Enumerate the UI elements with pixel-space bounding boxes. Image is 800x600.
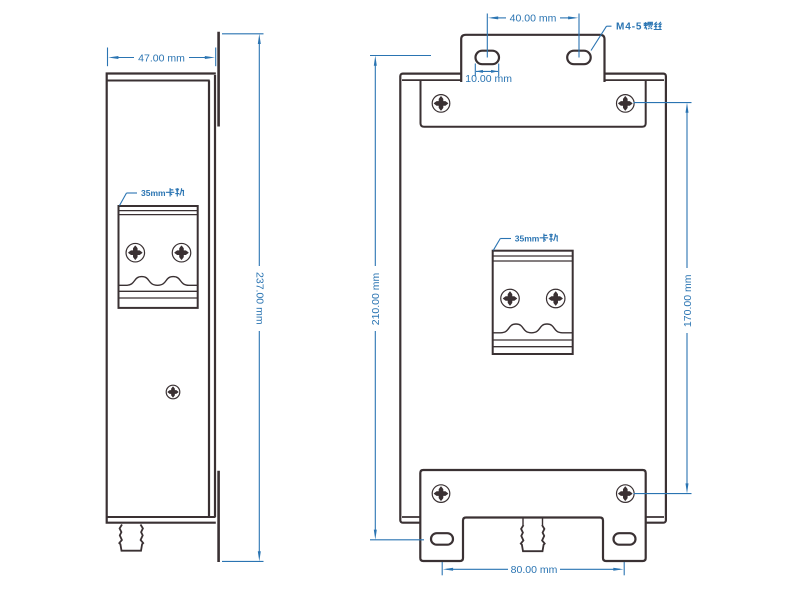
svg-text:170.00 mm: 170.00 mm [682,274,694,327]
svg-text:35mm: 35mm [141,188,166,198]
svg-text:210.00 mm: 210.00 mm [370,272,382,325]
svg-text:40.00 mm: 40.00 mm [510,13,557,25]
svg-text:80.00 mm: 80.00 mm [511,564,558,576]
svg-text:47.00 mm: 47.00 mm [138,52,185,64]
svg-text:35mm: 35mm [515,233,540,243]
svg-text:237.00 mm: 237.00 mm [254,272,266,325]
svg-text:M4-5: M4-5 [616,22,642,33]
svg-text:10.00 mm: 10.00 mm [465,73,512,85]
